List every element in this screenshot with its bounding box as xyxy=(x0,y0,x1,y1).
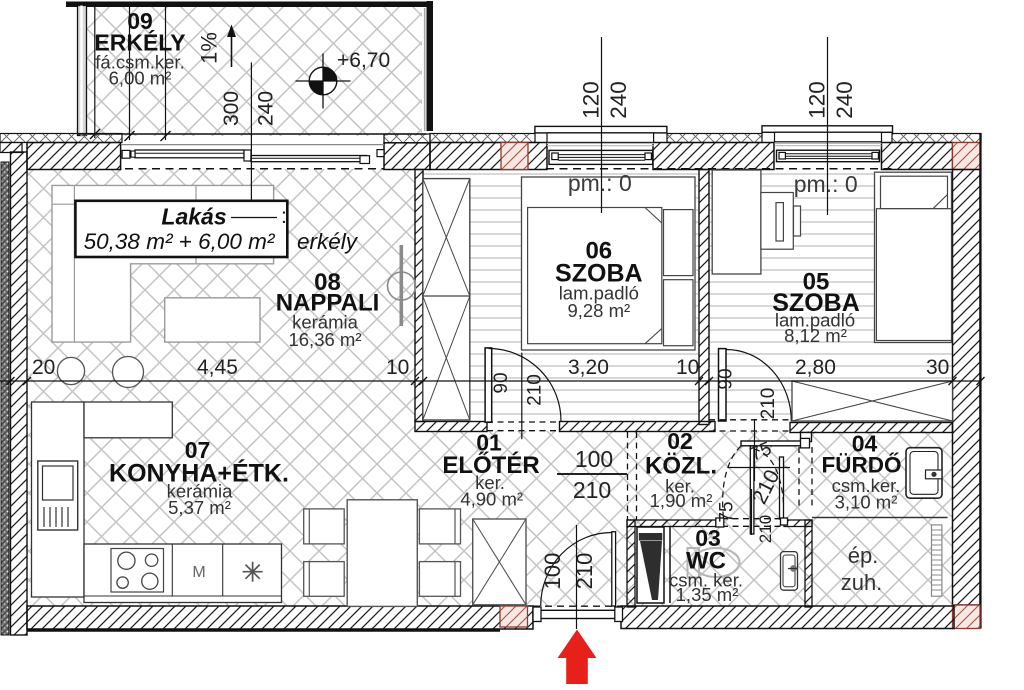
svg-text:210: 210 xyxy=(758,388,779,420)
svg-text:240: 240 xyxy=(606,81,631,119)
svg-text:3,20: 3,20 xyxy=(568,356,609,379)
svg-text:erkély: erkély xyxy=(297,229,359,254)
svg-text:9,28 m²: 9,28 m² xyxy=(567,300,630,321)
svg-text:3,10 m²: 3,10 m² xyxy=(835,492,898,513)
svg-text:pm.: 0: pm.: 0 xyxy=(568,170,632,196)
svg-text:210: 210 xyxy=(572,553,597,590)
svg-text:120: 120 xyxy=(805,81,830,119)
svg-text:+6,70: +6,70 xyxy=(337,49,390,72)
svg-text:16,36 m²: 16,36 m² xyxy=(288,329,361,350)
svg-text:6,00 m²: 6,00 m² xyxy=(109,68,172,89)
svg-text:10: 10 xyxy=(676,356,699,379)
svg-text:4,45: 4,45 xyxy=(197,356,238,379)
svg-text::: : xyxy=(281,205,287,228)
svg-text:2,80: 2,80 xyxy=(795,356,836,379)
svg-text:ép.: ép. xyxy=(848,543,879,568)
svg-text:210: 210 xyxy=(573,477,611,503)
svg-text:300: 300 xyxy=(220,91,243,126)
svg-text:1%: 1% xyxy=(197,32,222,64)
svg-text:20: 20 xyxy=(32,356,55,379)
svg-text:1,35 m²: 1,35 m² xyxy=(676,584,739,605)
svg-text:1,90 m²: 1,90 m² xyxy=(650,490,713,511)
svg-text:zuh.: zuh. xyxy=(841,570,883,595)
svg-text:8,12 m²: 8,12 m² xyxy=(784,325,847,346)
svg-text:5,37 m²: 5,37 m² xyxy=(168,497,231,518)
svg-text:90: 90 xyxy=(491,372,512,393)
svg-text:50,38 m² + 6,00 m²: 50,38 m² + 6,00 m² xyxy=(84,229,276,254)
svg-text:90: 90 xyxy=(716,368,737,389)
svg-text:240: 240 xyxy=(832,81,857,119)
svg-text:M: M xyxy=(192,564,205,581)
svg-text:4,90 m²: 4,90 m² xyxy=(460,489,523,510)
svg-text:75: 75 xyxy=(717,501,738,522)
svg-text:120: 120 xyxy=(579,81,604,119)
svg-text:100: 100 xyxy=(575,446,613,472)
svg-text:30: 30 xyxy=(926,356,949,379)
svg-text:10: 10 xyxy=(386,356,409,379)
svg-text:100: 100 xyxy=(540,553,565,590)
svg-text:FÜRDŐ: FÜRDŐ xyxy=(822,453,902,478)
svg-text:210: 210 xyxy=(756,515,775,543)
svg-text:02: 02 xyxy=(667,428,693,454)
svg-text:pm.: 0: pm.: 0 xyxy=(794,171,858,197)
svg-text:Lakás: Lakás xyxy=(161,204,226,230)
svg-text:210: 210 xyxy=(525,374,546,406)
svg-text:240: 240 xyxy=(255,91,278,126)
